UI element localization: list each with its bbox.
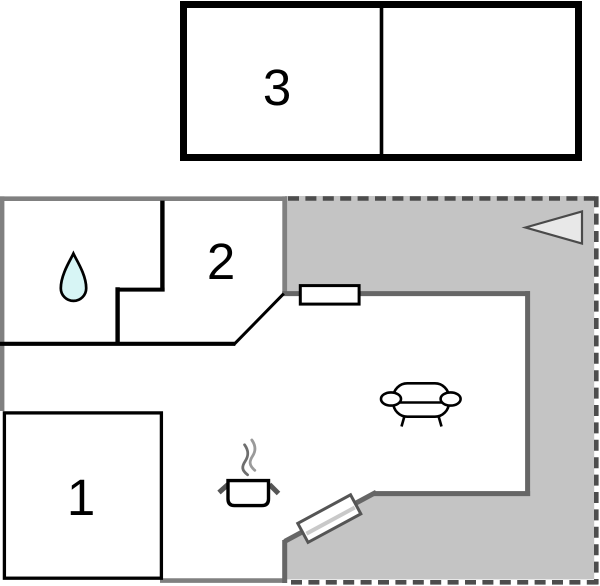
svg-text:3: 3 — [263, 59, 291, 116]
svg-text:1: 1 — [67, 469, 95, 526]
svg-text:2: 2 — [207, 233, 235, 290]
